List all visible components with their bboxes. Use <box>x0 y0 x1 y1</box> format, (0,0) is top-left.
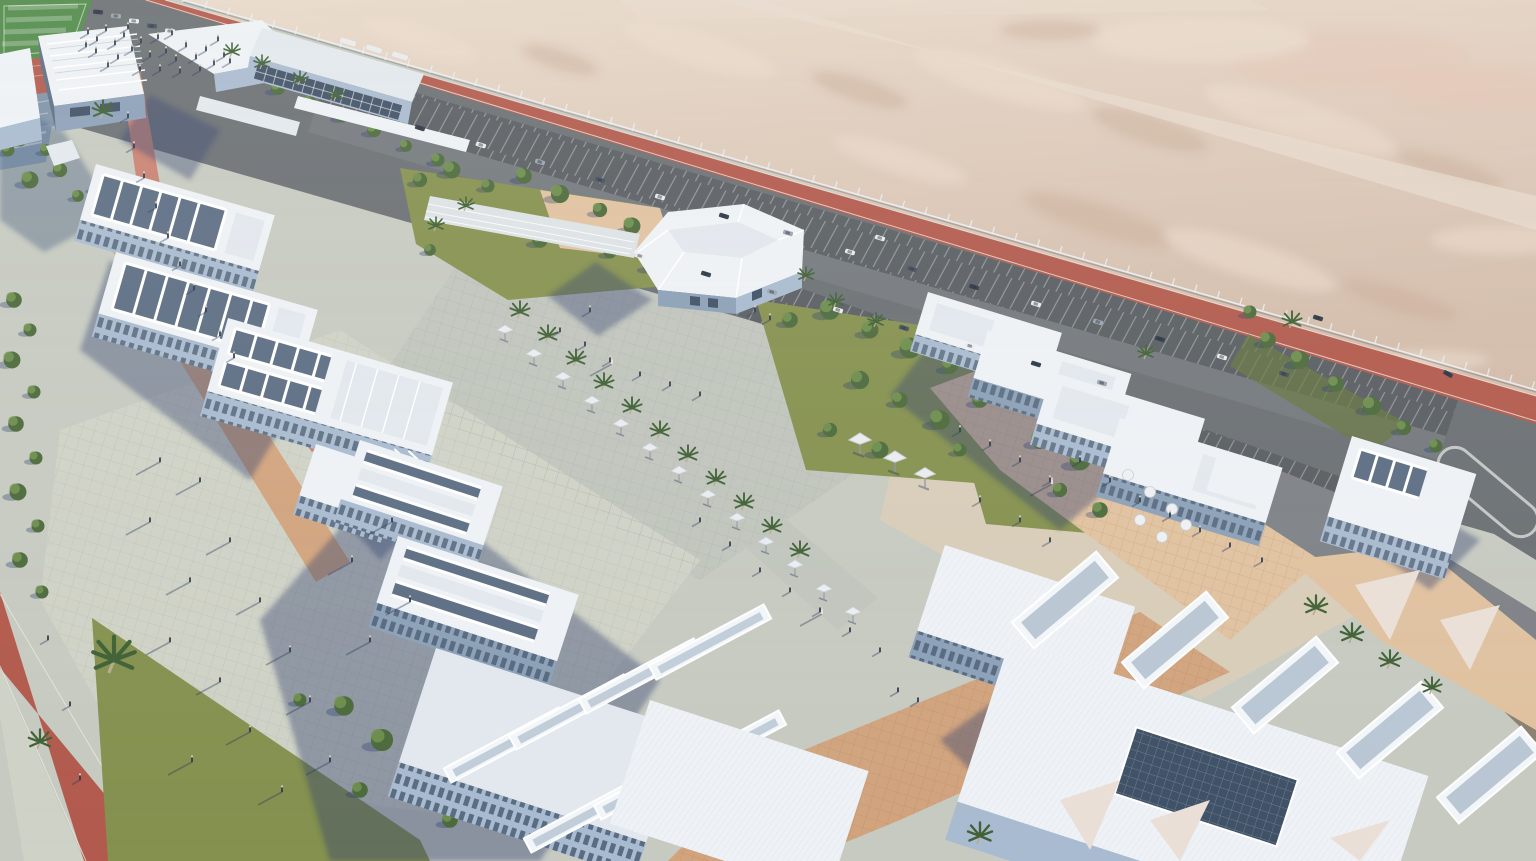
scene-canvas: Aerial architectural rendering of a whit… <box>0 0 1536 861</box>
sunlight-haze <box>0 0 1536 861</box>
aerial-campus-rendering: Aerial architectural rendering of a whit… <box>0 0 1536 861</box>
